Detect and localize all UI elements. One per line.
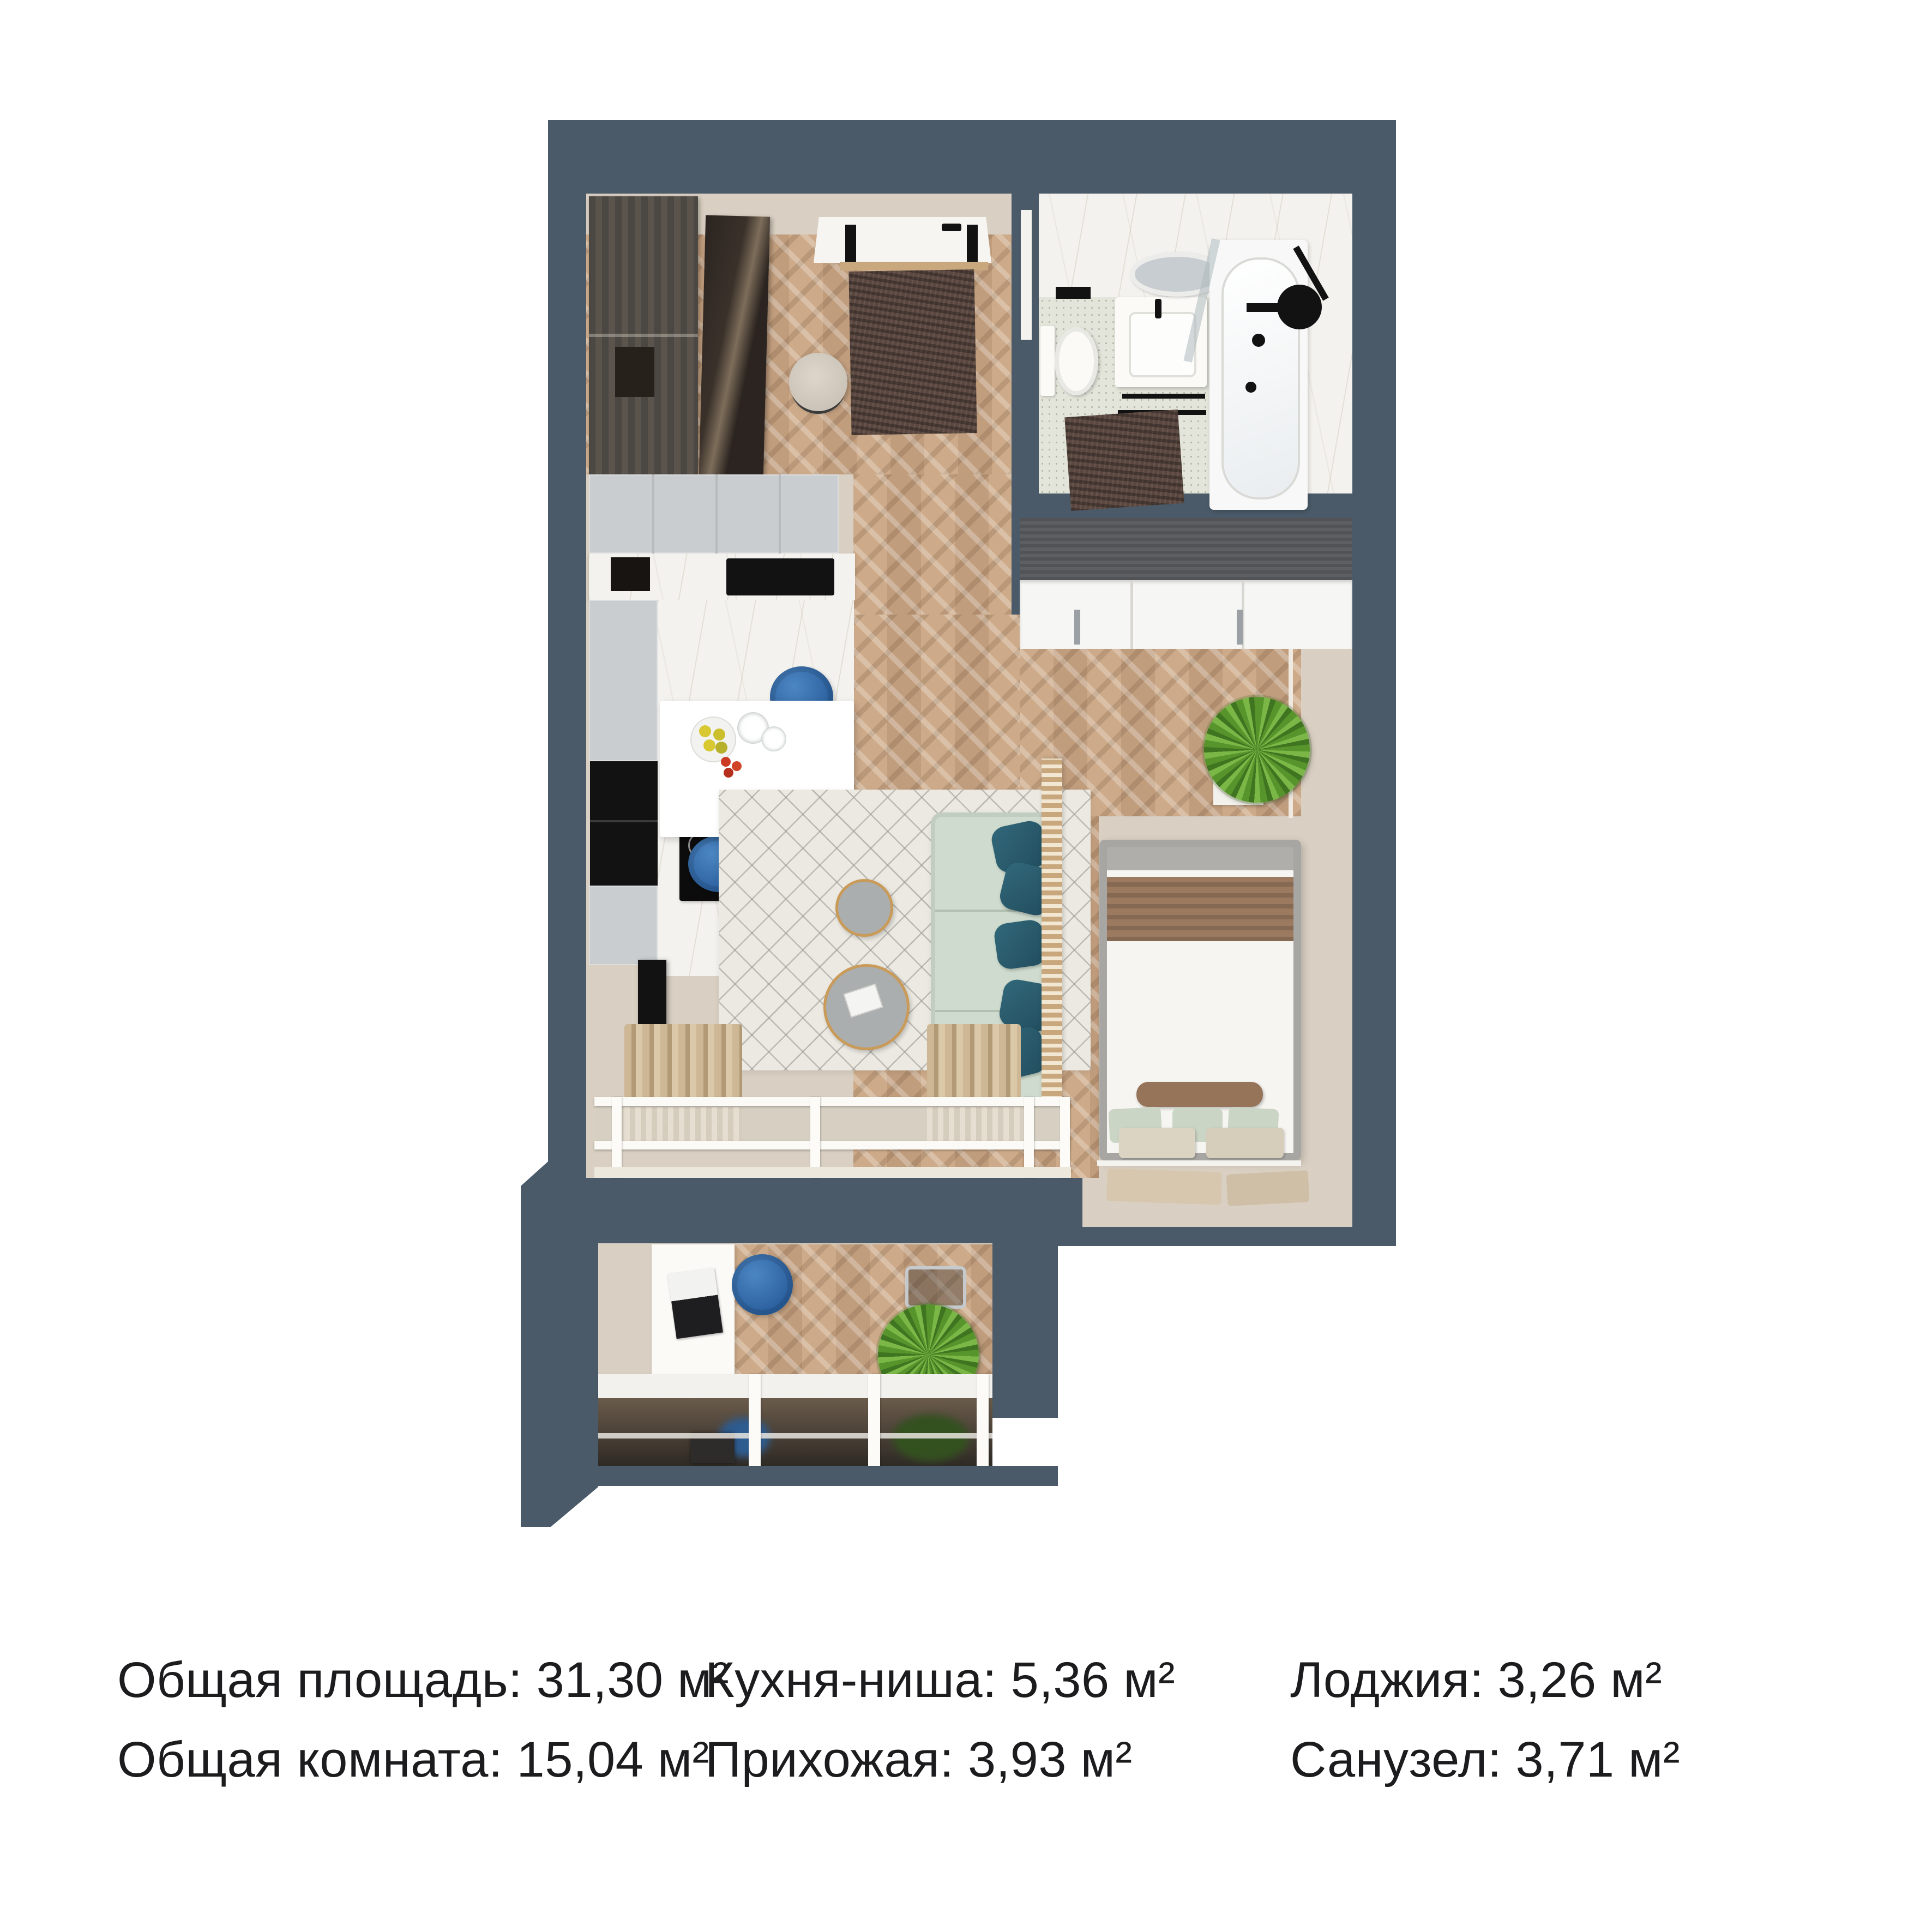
- loggia-rail-band: [598, 1374, 992, 1398]
- blanket-2: [1226, 1170, 1310, 1206]
- loggia-bottom-wall: [598, 1466, 1058, 1486]
- stat-kitchen: Кухня-ниша: 5,36 м²: [705, 1640, 1175, 1720]
- stat-value: 31,30: [537, 1652, 664, 1708]
- kitchen-left-cabinet: [589, 600, 658, 761]
- loggia-glass: [598, 1398, 992, 1466]
- stats-column-1: Общая площадь: 31,30 м² Общая комната: 1…: [117, 1640, 729, 1799]
- plant-bedroom: [1204, 697, 1310, 803]
- coffee-table-small: [835, 879, 893, 937]
- coffee-machine: [611, 557, 650, 591]
- stat-bathroom: Санузел: 3,71 м²: [1290, 1720, 1680, 1799]
- wardrobe-handle-1: [1074, 610, 1080, 645]
- window-post-4: [1060, 1097, 1070, 1178]
- loggia-right-wall: [992, 1246, 1058, 1418]
- stat-label: Общая площадь:: [117, 1652, 522, 1708]
- stat-unit: м²: [1081, 1732, 1133, 1787]
- bed-bench-line: [1097, 1160, 1301, 1166]
- bed-brown-runner: [1107, 877, 1293, 941]
- room-floor-upper-left: [853, 615, 1020, 816]
- kitchen-left-cabinet-2: [589, 886, 658, 965]
- entrance-door-recess: [814, 217, 991, 263]
- bed-bolster: [1136, 1082, 1263, 1107]
- shower-bar: [1247, 303, 1287, 312]
- sheer-right: [927, 1107, 1021, 1141]
- stat-label: Лоджия:: [1290, 1652, 1484, 1708]
- stat-unit: м²: [1123, 1652, 1175, 1708]
- stats-column-3: Лоджия: 3,26 м² Санузел: 3,71 м²: [1290, 1640, 1680, 1799]
- corridor-floor: [853, 474, 1012, 615]
- sink: [1129, 312, 1196, 377]
- stat-loggia: Лоджия: 3,26 м²: [1290, 1640, 1680, 1720]
- apples-red: [721, 757, 731, 767]
- stat-label: Кухня-ниша:: [705, 1652, 997, 1708]
- stat-hallway: Прихожая: 3,93 м²: [705, 1720, 1175, 1799]
- loggia-post-3: [977, 1374, 989, 1466]
- wardrobe-top: [1020, 518, 1352, 580]
- stat-label: Санузел:: [1290, 1732, 1502, 1787]
- bed-head-band: [1107, 847, 1293, 870]
- door-post-right: [967, 225, 978, 267]
- bed-cushion-2: [1206, 1128, 1284, 1158]
- blanket-1: [1106, 1168, 1222, 1205]
- kitchen-sink: [726, 558, 834, 595]
- stats-column-2: Кухня-ниша: 5,36 м² Прихожая: 3,93 м²: [705, 1640, 1175, 1799]
- wardrobe-seam-1: [1130, 580, 1133, 649]
- sheer-left: [624, 1107, 742, 1141]
- stat-total-area: Общая площадь: 31,30 м²: [117, 1640, 729, 1720]
- towel-rail-1: [1122, 394, 1205, 399]
- window-rail-top: [594, 1097, 1070, 1106]
- tub-drain: [1245, 382, 1256, 393]
- hall-wardrobe-divider: [589, 334, 698, 337]
- window-post-2: [810, 1097, 820, 1178]
- door-post-left: [845, 225, 856, 267]
- bath-mat: [1064, 410, 1184, 511]
- stat-label: Прихожая:: [705, 1732, 954, 1787]
- curtain-left: [624, 1024, 742, 1099]
- sofa-pillow-3: [993, 918, 1048, 971]
- loggia-post-2: [868, 1374, 880, 1466]
- stat-main-room: Общая комната: 15,04 м²: [117, 1720, 729, 1799]
- bathroom-door: [1021, 210, 1032, 340]
- door-handle: [942, 224, 961, 231]
- wardrobe-doors: [1020, 580, 1352, 649]
- kitchen-upper-cabinets: [589, 474, 839, 553]
- stat-value: 5,36: [1011, 1652, 1110, 1708]
- stat-value: 3,26: [1498, 1652, 1597, 1708]
- laptop: [667, 1268, 723, 1339]
- fruits-yellow: [699, 725, 711, 737]
- loggia-post-1: [749, 1374, 761, 1466]
- metal-chair-frame: [905, 1266, 966, 1309]
- stat-value: 3,71: [1516, 1732, 1615, 1787]
- stat-unit: м²: [1628, 1732, 1680, 1787]
- stat-unit: м²: [658, 1732, 709, 1787]
- flowers-2: [761, 726, 786, 751]
- window-post-3: [1024, 1097, 1034, 1178]
- pouf: [789, 353, 847, 411]
- bed-cushion-1: [1119, 1128, 1195, 1158]
- slat-partition: [1042, 759, 1062, 1148]
- stat-label: Общая комната:: [117, 1732, 503, 1787]
- window-rail-bottom: [594, 1141, 1070, 1149]
- shower-knob: [1252, 334, 1265, 347]
- hall-wardrobe-box: [615, 347, 654, 397]
- leaning-mirror: [698, 215, 770, 518]
- toilet-tank: [1040, 326, 1055, 396]
- stat-value: 15,04: [517, 1732, 644, 1787]
- loggia-chair: [732, 1254, 793, 1315]
- window-post-1: [612, 1097, 622, 1178]
- toilet-bowl: [1055, 327, 1098, 395]
- loggia-midrail: [598, 1433, 992, 1439]
- stat-unit: м²: [1610, 1652, 1662, 1708]
- bathroom-shelf: [1056, 287, 1091, 299]
- stat-value: 3,93: [968, 1732, 1067, 1787]
- faucet: [1155, 299, 1161, 318]
- cab-seam-1: [652, 474, 654, 553]
- curtain-right: [927, 1024, 1021, 1099]
- floor-plan-page: 1659: [0, 0, 1932, 1932]
- wardrobe-handle-2: [1237, 610, 1243, 645]
- fruit-plate: [690, 717, 736, 762]
- cab-seam-3: [779, 474, 781, 553]
- entrance-mat: [848, 269, 977, 435]
- window-sill: [594, 1167, 1071, 1178]
- fridge: [590, 761, 658, 886]
- cab-seam-2: [715, 474, 718, 553]
- fridge-seam: [590, 820, 658, 822]
- loggia-left-wall: [521, 1161, 598, 1527]
